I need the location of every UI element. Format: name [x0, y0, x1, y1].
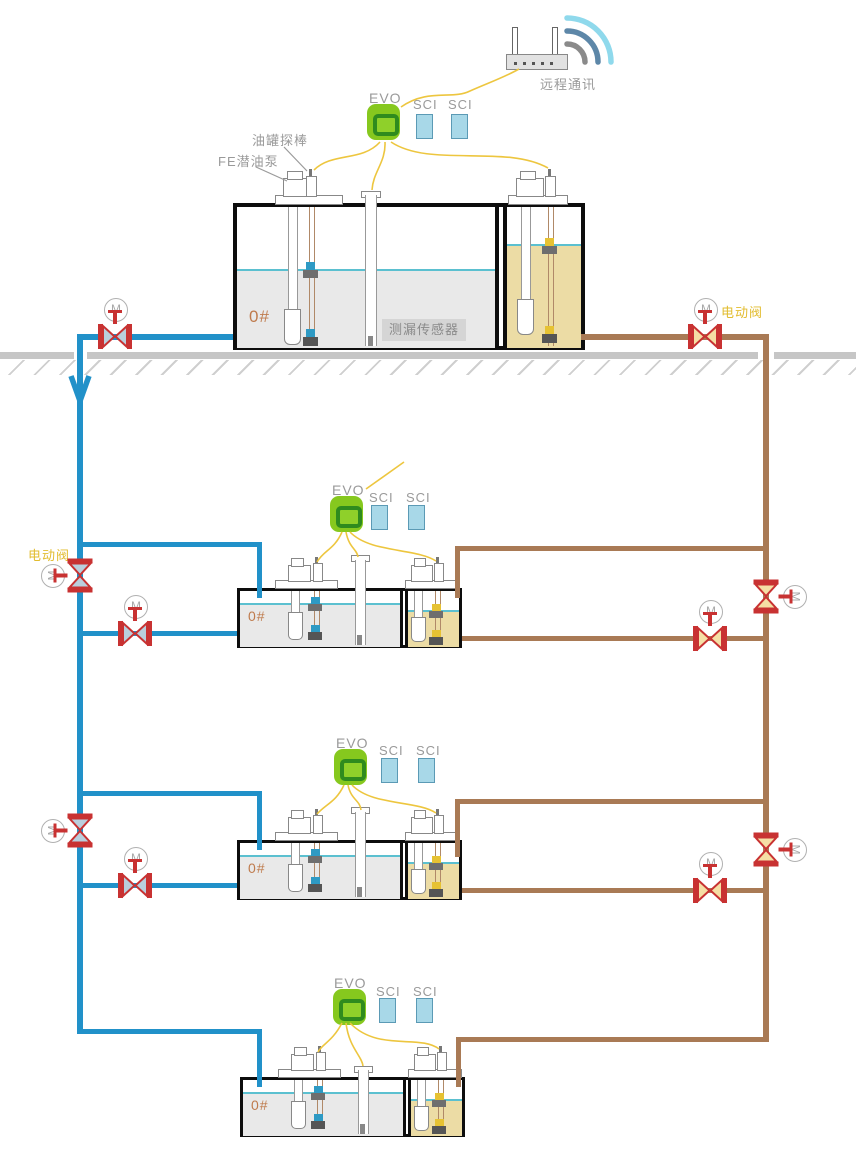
tank-probe-head: [316, 1052, 326, 1071]
leak-sensor-label: 测漏传感器: [382, 319, 466, 341]
probe-float-base: [429, 863, 443, 870]
pipe-brown-surface: [581, 334, 769, 340]
fuel-grade-label: 0#: [249, 307, 270, 327]
sci-module: [416, 998, 433, 1023]
signal-wire: [317, 785, 344, 814]
pipe-brown-branch-2: [455, 799, 765, 804]
probe-anchor-base: [311, 1121, 325, 1129]
pipe-brown-main: [763, 334, 769, 1042]
evo-screen: [340, 759, 366, 781]
probe-anchor-base: [308, 632, 322, 640]
ground-hatch: [0, 360, 856, 375]
probe-stub: [436, 557, 439, 563]
sci-module: [379, 998, 396, 1023]
tank-probe-head: [434, 815, 444, 834]
router-antenna: [552, 27, 558, 57]
probe-stub: [439, 1046, 442, 1052]
submersible-pump: [288, 864, 303, 892]
pump-motor: [291, 1054, 314, 1071]
probe-float-base: [311, 1093, 325, 1100]
pump-motor: [414, 1054, 436, 1071]
signal-wire: [346, 532, 358, 557]
probe-float-base: [303, 270, 318, 278]
probe-float: [314, 1086, 323, 1093]
submersible-pump: [411, 869, 426, 894]
probe-stub: [318, 1046, 321, 1052]
probe-float-base: [432, 1100, 446, 1107]
leak-sensor-tube: [365, 195, 377, 346]
router-antenna: [512, 27, 518, 57]
pipe-blue-drop-3: [257, 1029, 262, 1087]
pump-tube: [288, 207, 298, 310]
probe-anchor: [311, 625, 320, 632]
remote-comm-label: 远程通讯: [540, 74, 596, 93]
tank-probe-head: [313, 563, 323, 582]
leak-sensor-tip: [357, 887, 362, 897]
fe-pump-label: FE潜油泵: [218, 151, 279, 170]
pump-motor: [288, 817, 311, 834]
pipe-brown-drop-1: [455, 546, 460, 598]
probe-float: [311, 597, 320, 604]
pump-motor-cap: [294, 1047, 307, 1056]
piping-diagram: 0# 测漏传感器 0#: [0, 0, 856, 1154]
leak-sensor-tip: [360, 1124, 365, 1134]
probe-stub: [315, 557, 318, 563]
pipe-brown-drop-2: [455, 799, 460, 857]
submersible-pump: [414, 1106, 429, 1131]
submersible-pump: [291, 1101, 306, 1129]
underground-fuel-tank-2: 0#: [237, 840, 462, 900]
probe-anchor: [432, 630, 441, 637]
ground-bar: [87, 352, 758, 359]
signal-wire: [350, 1023, 439, 1049]
signal-wire: [314, 142, 380, 170]
pipe-blue-drop-1: [257, 542, 262, 598]
signal-wire: [372, 142, 385, 190]
wifi-arc-icon: [567, 31, 598, 62]
motorized-valve: [116, 859, 154, 904]
submersible-pump: [284, 309, 301, 345]
pipe-blue-branch-1: [80, 542, 260, 547]
pump-motor: [288, 565, 311, 582]
fuel-grade-label: 0#: [248, 608, 266, 624]
evo-screen: [373, 114, 399, 136]
router-led-strip: [514, 62, 558, 65]
leader-line: [284, 147, 307, 171]
pump-tube: [417, 1080, 426, 1107]
tank-probe-head: [437, 1052, 447, 1071]
pump-tube: [414, 843, 423, 870]
ground-bar: [0, 352, 74, 359]
electric-valve-label: 电动阀: [721, 302, 763, 321]
probe-anchor-base: [303, 337, 318, 346]
sci-module-label: SCI: [413, 984, 438, 999]
probe-float: [432, 604, 441, 611]
sci-module: [416, 114, 433, 139]
probe-float: [311, 849, 320, 856]
sci-module-label: SCI: [448, 97, 473, 112]
compartment-divider: [403, 1080, 411, 1134]
probe-anchor: [545, 326, 554, 334]
probe-anchor: [314, 1114, 323, 1121]
evo-console: [333, 989, 366, 1025]
motorized-valve: [116, 607, 154, 652]
probe-anchor: [432, 882, 441, 889]
pipe-blue-branch-3: [80, 1029, 260, 1034]
signal-wire: [318, 1023, 342, 1052]
probe-float: [545, 238, 554, 246]
probe-float: [435, 1093, 444, 1100]
probe-float-base: [308, 604, 322, 611]
pipe-blue-branch-2: [80, 791, 260, 796]
probe-float-base: [429, 611, 443, 618]
sci-module-label: SCI: [406, 490, 431, 505]
wifi-arc-icon: [567, 18, 611, 62]
sci-module-label: SCI: [416, 743, 441, 758]
submersible-pump: [517, 299, 534, 335]
probe-stub: [309, 169, 312, 176]
sci-module: [418, 758, 435, 783]
probe-anchor: [435, 1119, 444, 1126]
probe-float-base: [542, 246, 557, 254]
ground-bar: [774, 352, 856, 359]
tank-probe-head: [306, 176, 317, 197]
probe-anchor: [306, 329, 315, 337]
pump-motor: [516, 178, 544, 197]
pipe-blue-main: [77, 334, 83, 1034]
tank-probe-head: [313, 815, 323, 834]
sci-module: [451, 114, 468, 139]
motorized-valve: [96, 310, 134, 355]
pump-motor-cap: [414, 810, 426, 819]
wifi-arc-icon: [567, 44, 585, 62]
sci-module-label: SCI: [376, 984, 401, 999]
pump-tube: [291, 591, 300, 613]
underground-fuel-tank-3: 0#: [240, 1077, 465, 1137]
leak-sensor-tube: [355, 560, 366, 645]
evo-console: [330, 496, 363, 532]
sci-module: [371, 505, 388, 530]
probe-float-base: [308, 856, 322, 863]
probe-stub: [436, 809, 439, 815]
pipe-brown-branch-1: [455, 546, 765, 551]
sci-module-label: SCI: [369, 490, 394, 505]
signal-wire: [317, 532, 342, 562]
probe-anchor-base: [429, 637, 443, 645]
pipe-brown-drop-3: [456, 1037, 461, 1087]
pump-motor-cap: [287, 171, 303, 180]
pump-motor-cap: [414, 558, 426, 567]
compartment-divider: [495, 207, 507, 346]
probe-stub: [315, 809, 318, 815]
submersible-pump: [411, 617, 426, 642]
underground-fuel-tank-1: 0#: [237, 588, 462, 648]
motorized-valve: [691, 612, 729, 657]
probe-anchor-base: [542, 334, 557, 343]
submersible-pump: [288, 612, 303, 640]
probe-anchor: [311, 877, 320, 884]
signal-wire: [366, 462, 404, 489]
surface-fuel-tank: 0# 测漏传感器: [233, 203, 585, 350]
pipe-blue-drop-2: [257, 791, 262, 850]
pump-tube: [294, 1080, 303, 1102]
probe-anchor-base: [429, 889, 443, 897]
probe-float: [432, 856, 441, 863]
motorized-valve: [748, 831, 793, 869]
tank-probe-head: [434, 563, 444, 582]
pump-motor-cap: [417, 1047, 429, 1056]
sci-module: [408, 505, 425, 530]
pump-motor-cap: [291, 810, 304, 819]
wifi-router-icon: [506, 54, 568, 70]
evo-console: [334, 749, 367, 785]
sci-module-label: SCI: [379, 743, 404, 758]
evo-screen: [336, 506, 362, 528]
pipe-brown-branch-3: [456, 1037, 765, 1042]
probe-anchor-base: [432, 1126, 446, 1134]
tank-probe-head: [545, 176, 556, 197]
pump-tube: [521, 207, 531, 300]
leak-sensor-tip: [368, 336, 373, 346]
pump-motor: [411, 565, 433, 582]
compartment-divider: [400, 843, 408, 897]
probe-anchor-base: [308, 884, 322, 892]
pump-motor: [411, 817, 433, 834]
fuel-grade-label: 0#: [248, 860, 266, 876]
signal-wire: [346, 1023, 363, 1066]
pump-motor-cap: [291, 558, 304, 567]
fuel-grade-label: 0#: [251, 1097, 269, 1113]
pump-tube: [414, 591, 423, 618]
motorized-valve: [748, 578, 793, 616]
pipe-blue-lower-1: [80, 631, 237, 636]
motorized-valve: [54, 812, 99, 850]
pipe-blue-lower-2: [80, 883, 237, 888]
pump-tube: [291, 843, 300, 865]
pump-motor-cap: [520, 171, 536, 180]
leak-sensor-tube: [355, 812, 366, 897]
sci-module: [381, 758, 398, 783]
evo-screen: [339, 999, 365, 1021]
motorized-valve: [54, 557, 99, 595]
probe-float: [306, 262, 315, 270]
signal-wire: [391, 142, 548, 168]
motorized-valve: [691, 864, 729, 909]
leak-sensor-tip: [357, 635, 362, 645]
compartment-divider: [400, 591, 408, 645]
evo-console: [367, 104, 400, 140]
tank-probe-label: 油罐探棒: [252, 130, 308, 149]
motorized-valve: [686, 310, 724, 355]
probe-stub: [548, 169, 551, 176]
sci-module-label: SCI: [413, 97, 438, 112]
